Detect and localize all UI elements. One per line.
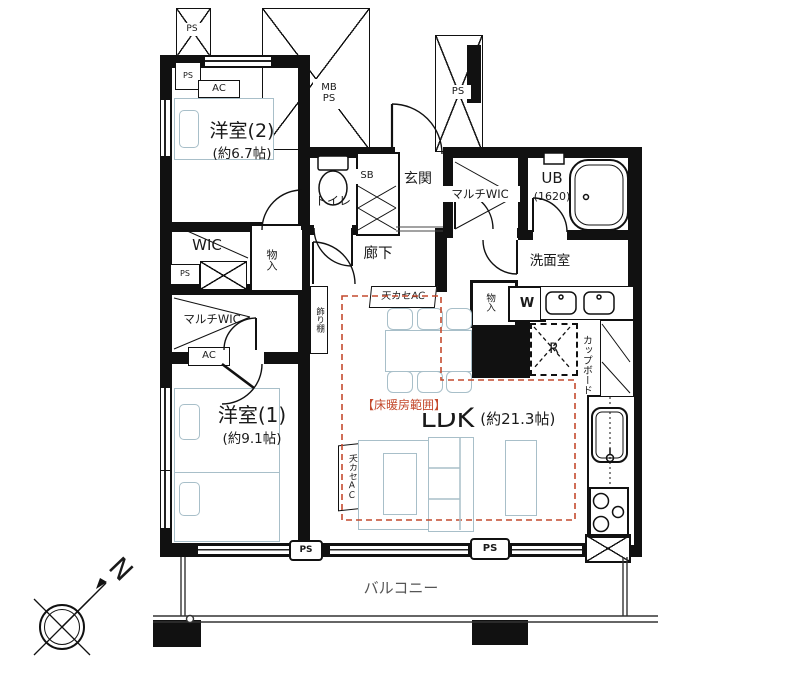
- front-door-arc: [392, 104, 442, 154]
- room-label-multiwic-top: マルチWIC: [440, 186, 520, 202]
- room-label-washroom: 洗面室: [518, 252, 582, 270]
- room-label-toilet: トイレ: [309, 193, 357, 209]
- ldk-size: (約21.3帖): [480, 411, 555, 427]
- label-meter-box-pipe-space: MB PS: [313, 79, 345, 109]
- label-pipe-space-top-left: PS: [180, 23, 204, 36]
- room-label-unit-bath: UB: [536, 168, 568, 188]
- western2-door-arc: [262, 190, 302, 230]
- vanity-sinks: [546, 292, 614, 314]
- room-label-western2: 洋室(2): [192, 118, 292, 144]
- label-floor-heating: 【床暖房範囲】: [344, 397, 464, 413]
- label-cupboard: カップボード: [577, 324, 593, 406]
- room-label-hallway: 廊下: [354, 246, 402, 264]
- label-storage-hall: 物入: [261, 233, 281, 287]
- room-size-unit-bath: (1620): [528, 189, 576, 204]
- washroom-door-arc: [483, 240, 517, 274]
- refrigerator-dashes: [534, 327, 570, 368]
- room-label-entrance: 玄関: [396, 171, 440, 189]
- room-size-western2: (約6.7帖): [196, 146, 288, 163]
- label-pipe-space-right: PS: [445, 85, 471, 99]
- room-label-wic: WIC: [184, 235, 230, 255]
- label-shoe-box: SB: [355, 169, 379, 184]
- compass: [34, 578, 107, 655]
- entrance-step: [396, 227, 443, 231]
- stove: [590, 488, 628, 537]
- label-storage-ldk: 物入: [480, 284, 498, 320]
- label-balcony: バルコニー: [354, 579, 448, 598]
- room-size-western1: (約9.1帖): [204, 430, 300, 448]
- floor-plan: W R 飾り棚 PS PS PS PS AC AC 天カセAC 天カセAC: [0, 0, 786, 694]
- pipe-space-text: PS: [323, 94, 335, 105]
- room-label-western1: 洋室(1): [200, 402, 304, 429]
- room-label-multiwic-left: マルチWIC: [170, 311, 254, 327]
- sofa-cushion-lines: [428, 437, 460, 530]
